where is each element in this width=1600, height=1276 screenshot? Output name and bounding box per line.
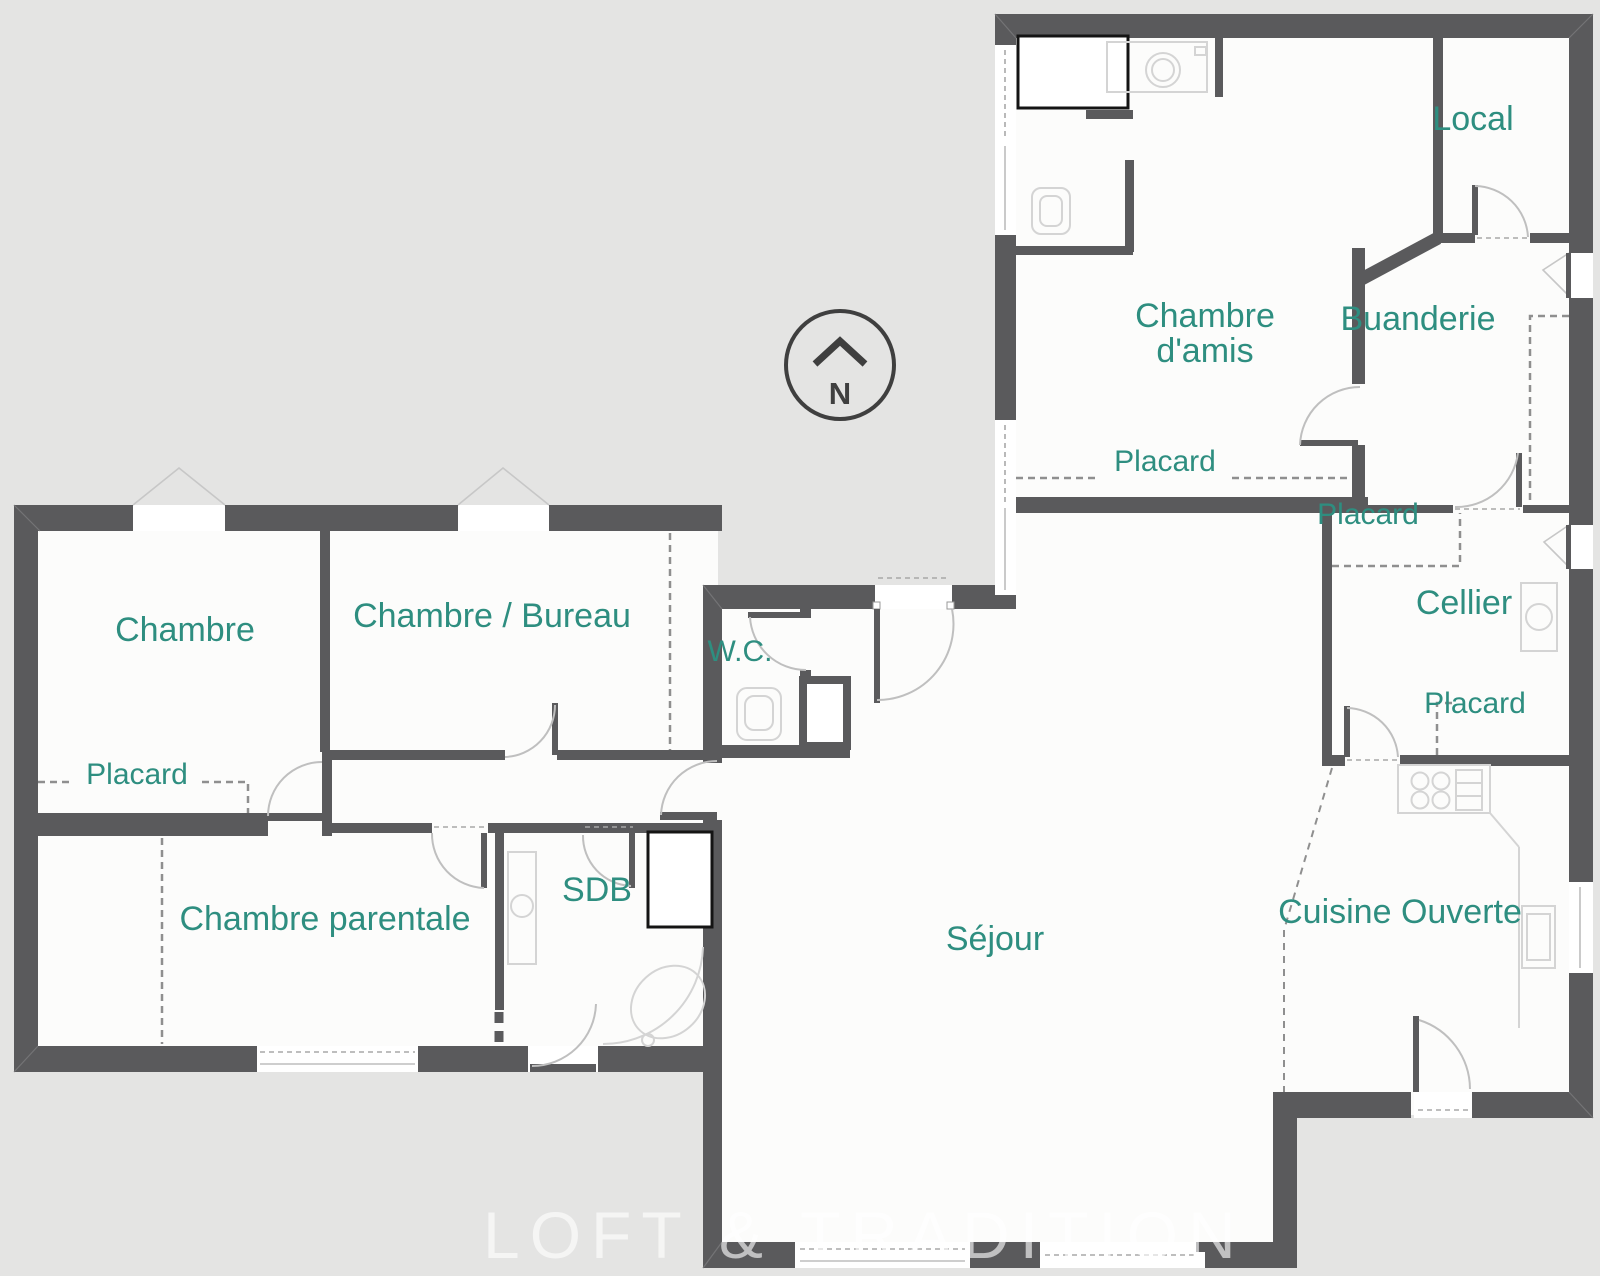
label-placard-cellier-haut: Placard: [1317, 498, 1419, 531]
floor-plan: Chambre Chambre / Bureau W.C. Placard Ch…: [0, 0, 1600, 1276]
cupboard-wc: [803, 680, 847, 746]
label-placard-chambre: Placard: [86, 758, 188, 791]
label-buanderie: Buanderie: [1340, 300, 1495, 338]
window-cuisine-right: [1569, 882, 1593, 973]
label-chambre-bureau: Chambre / Bureau: [353, 597, 631, 635]
floor-plan-page: Chambre Chambre / Bureau W.C. Placard Ch…: [0, 0, 1600, 1276]
label-cuisine: Cuisine Ouverte: [1278, 893, 1522, 931]
label-local: Local: [1432, 100, 1513, 138]
label-placard-damis: Placard: [1114, 445, 1216, 478]
label-chambre-damis-2: d'amis: [1156, 332, 1253, 370]
window-damis-left-1: [995, 45, 1016, 235]
label-sejour: Séjour: [946, 920, 1044, 958]
label-wc: W.C.: [708, 635, 773, 668]
window-parentale-bottom: [250, 1046, 425, 1072]
label-placard-cellier-bas: Placard: [1424, 687, 1526, 720]
label-chambre: Chambre: [115, 611, 255, 649]
label-sdb: SDB: [562, 871, 632, 909]
compass-letter: N: [829, 376, 851, 411]
shower-sdb: [648, 832, 712, 927]
shower-damis: [1018, 36, 1128, 108]
label-chambre-damis-1: Chambre: [1135, 297, 1275, 335]
label-chambre-parentale: Chambre parentale: [179, 900, 470, 938]
label-cellier: Cellier: [1416, 584, 1512, 622]
window-damis-left-2: [995, 420, 1016, 595]
watermark: LOFT & TRADITION: [483, 1198, 1246, 1272]
